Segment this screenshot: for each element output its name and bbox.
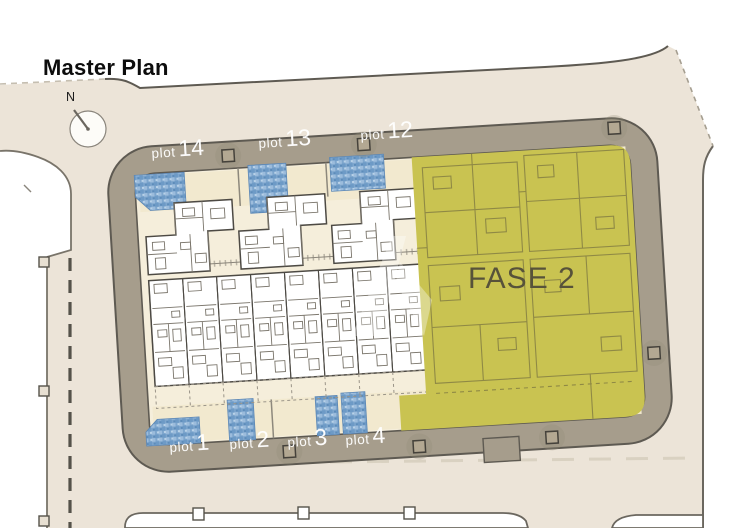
plot-label-12: plot 12 bbox=[360, 118, 414, 144]
main-plot-block bbox=[105, 113, 675, 485]
plot-label-4: plot 4 bbox=[345, 424, 386, 449]
phase-label: FASE 2 bbox=[468, 262, 576, 296]
plot-label-2: plot 2 bbox=[229, 428, 270, 453]
pool-plot-12 bbox=[329, 154, 385, 191]
plot-label-1: plot 1 bbox=[169, 431, 210, 456]
page-title: Master Plan bbox=[43, 55, 169, 81]
plot-label-3: plot 3 bbox=[287, 426, 328, 451]
plot-label-14: plot 14 bbox=[151, 136, 205, 162]
master-plan-canvas: Master Plan N plot 14 plot 13 plot 12 pl… bbox=[0, 0, 756, 528]
compass-icon bbox=[70, 110, 106, 147]
plot-label-13: plot 13 bbox=[258, 126, 312, 152]
compass-north-label: N bbox=[66, 90, 75, 104]
